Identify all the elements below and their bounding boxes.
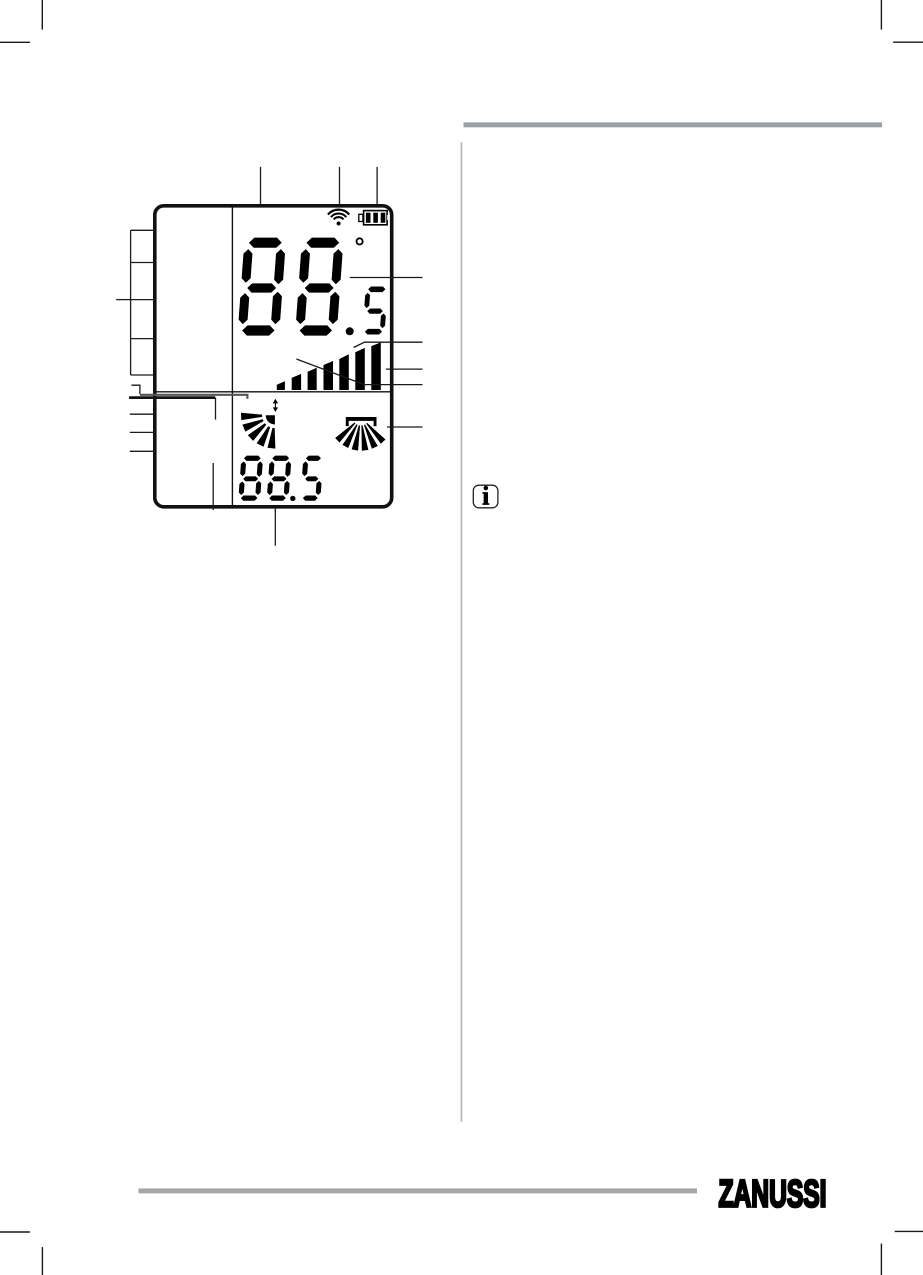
svg-text:ZANUSSI: ZANUSSI: [719, 1174, 827, 1216]
svg-text:i: i: [482, 482, 489, 511]
